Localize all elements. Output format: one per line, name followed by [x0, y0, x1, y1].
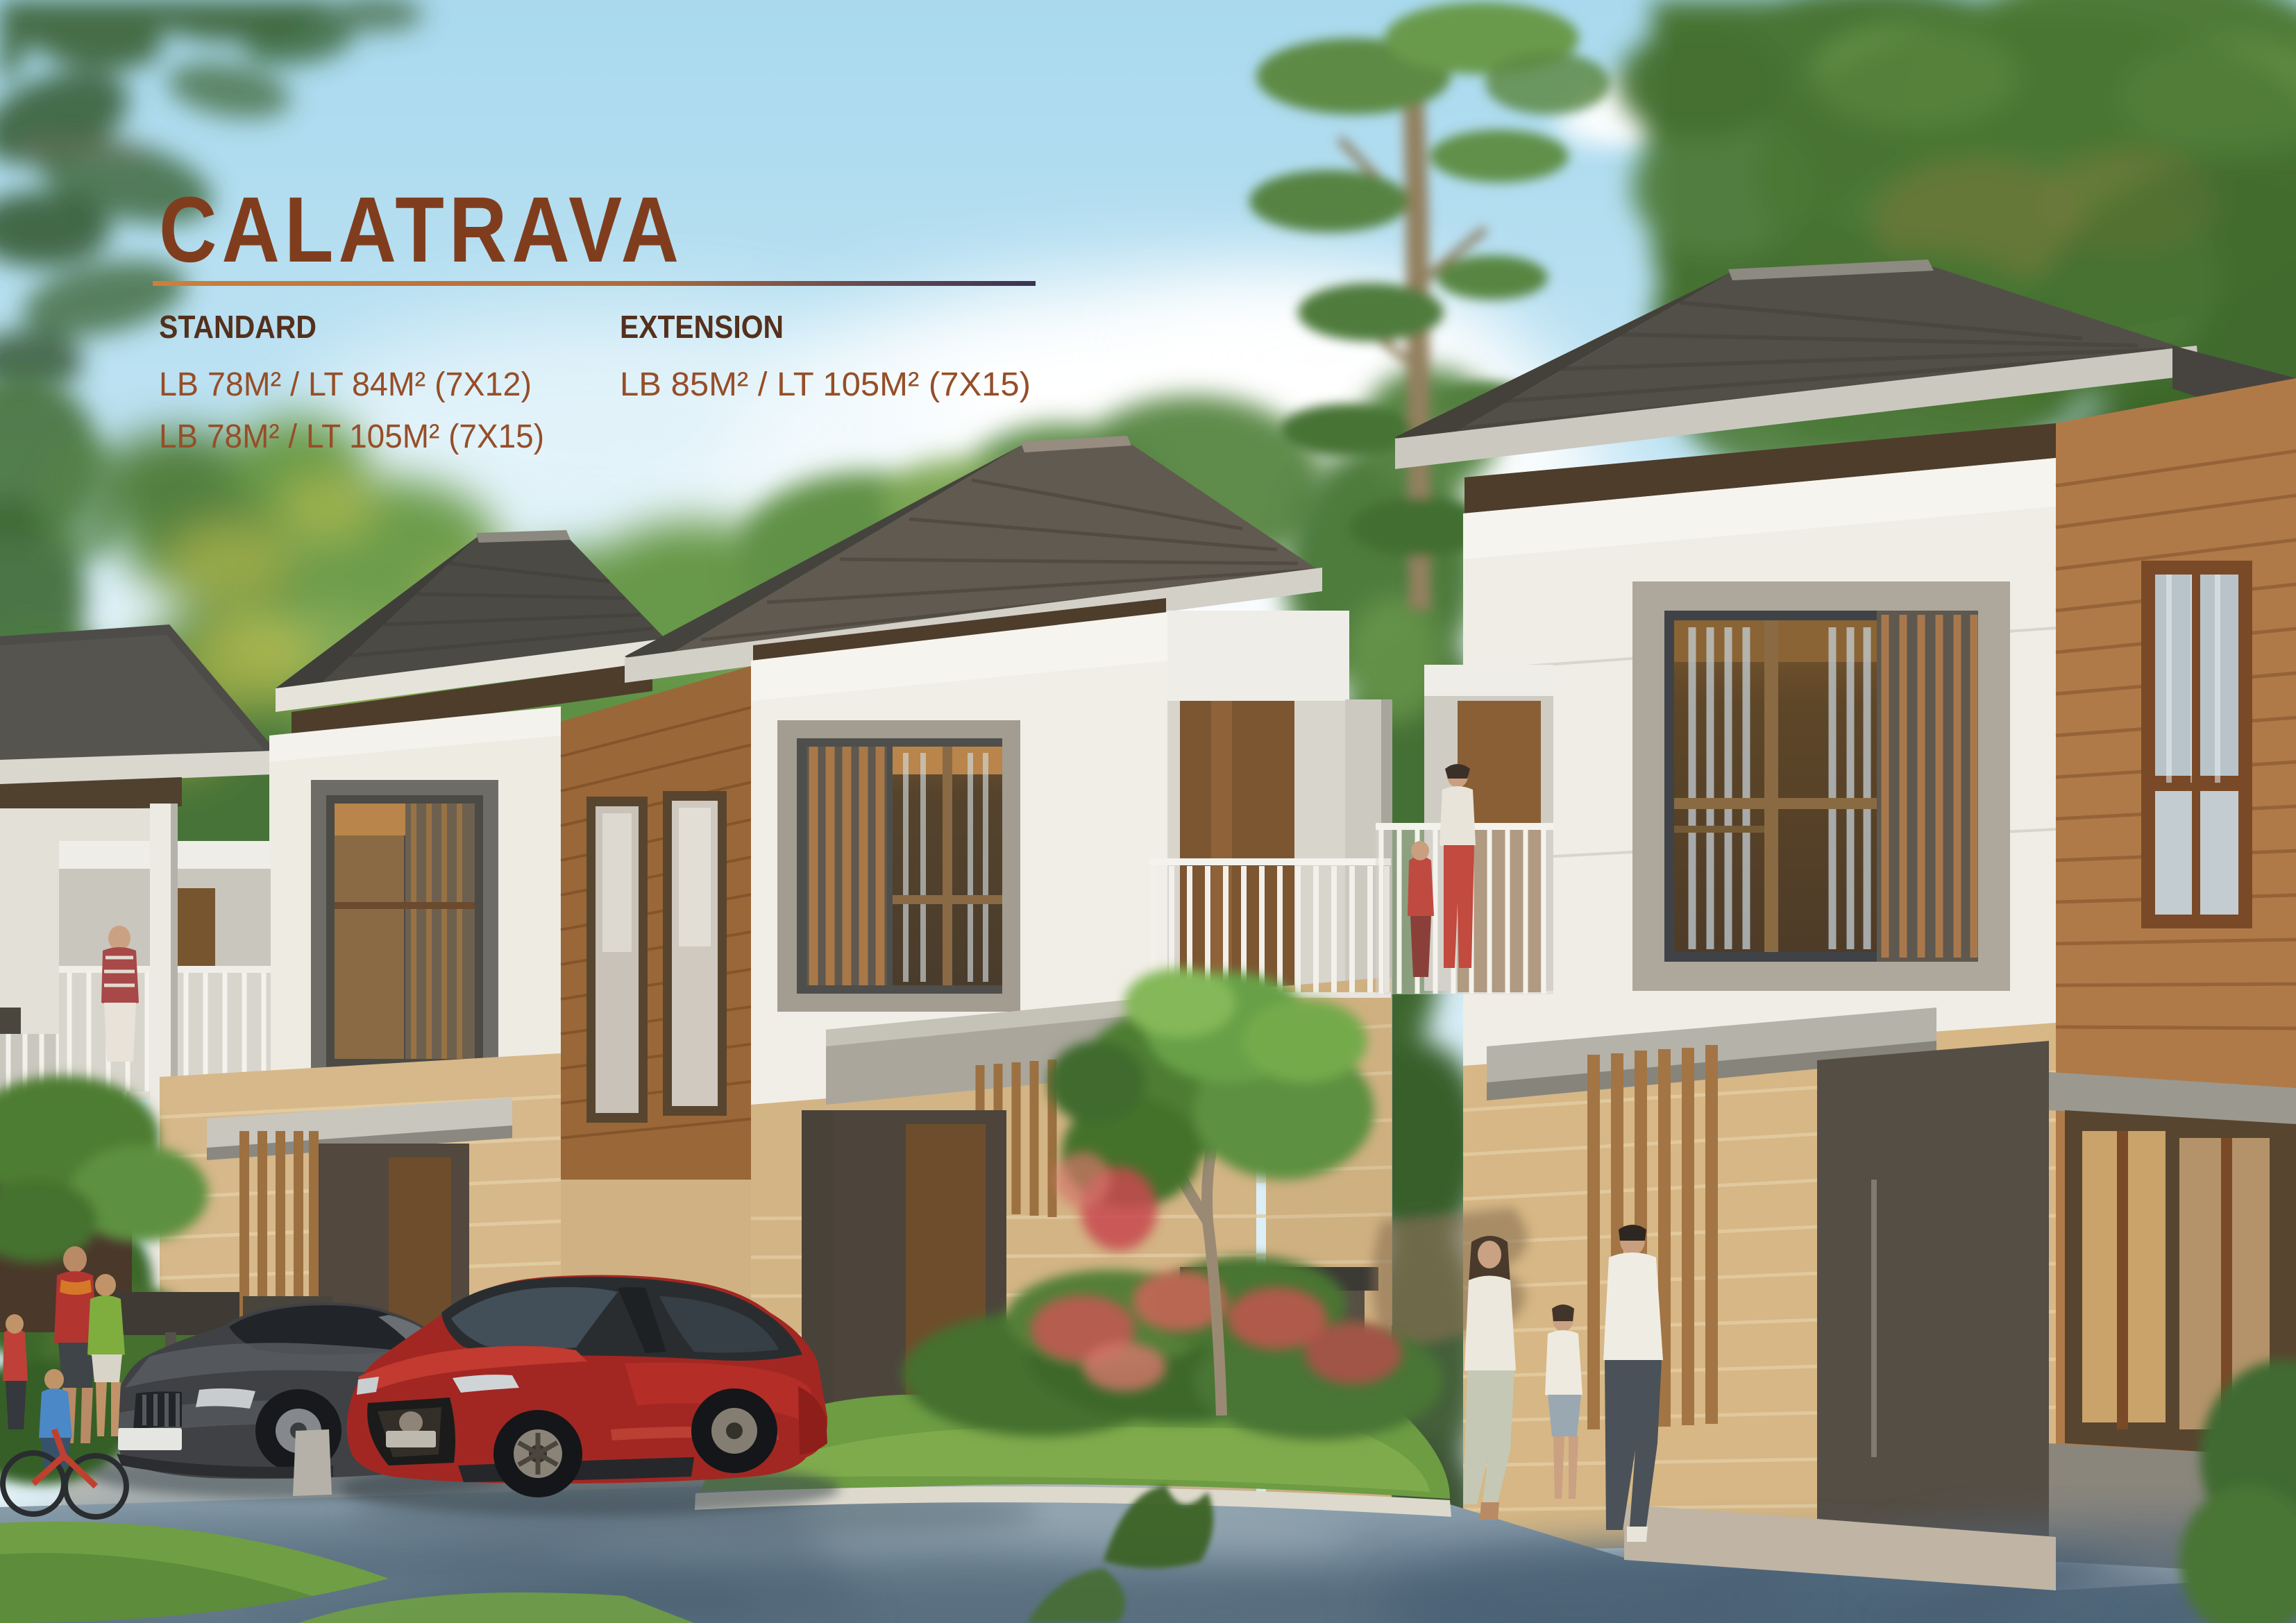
svg-text:EXTENSION: EXTENSION [620, 309, 784, 345]
svg-text:CALATRAVA: CALATRAVA [159, 178, 684, 282]
svg-text:LB 85M² / LT 105M² (7X15): LB 85M² / LT 105M² (7X15) [620, 366, 1031, 403]
svg-text:LB 78M² / LT 84M² (7X12): LB 78M² / LT 84M² (7X12) [159, 366, 532, 403]
svg-text:STANDARD: STANDARD [159, 309, 316, 345]
svg-text:LB 78M² / LT 105M² (7X15): LB 78M² / LT 105M² (7X15) [159, 418, 544, 455]
